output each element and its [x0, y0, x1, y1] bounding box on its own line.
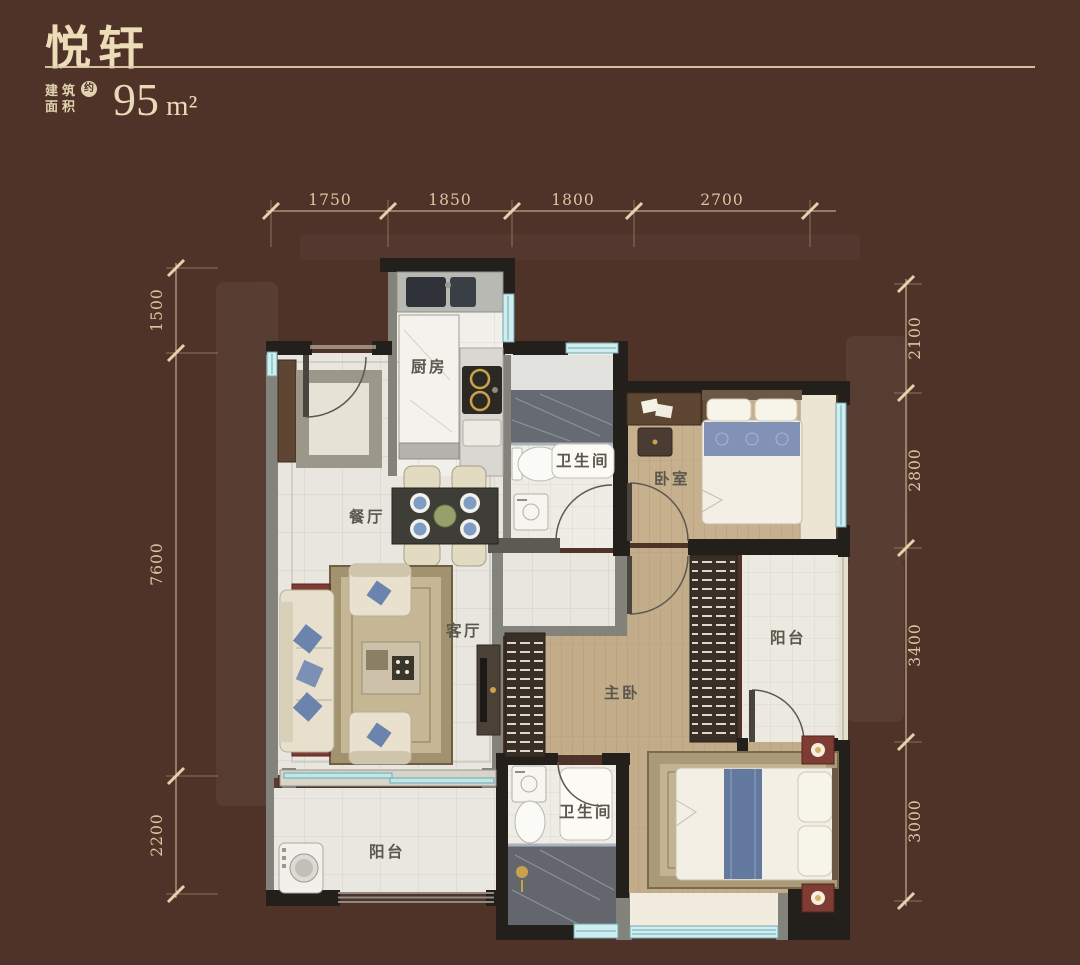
dim-left-1: 1500 [148, 288, 166, 331]
tv-icon [480, 658, 487, 722]
entry-furniture [278, 355, 382, 468]
bedroom-bay-ledge [800, 395, 836, 543]
balcony-left-furniture [279, 843, 323, 893]
kitchen-sink-icon [406, 277, 446, 307]
label-master: 主卧 [604, 683, 640, 702]
dimension-left: 1500 7600 2200 [148, 260, 218, 902]
master-bay-window [630, 893, 778, 938]
floor-plan-page: 悦轩 建筑 面积 约 95 m² [0, 0, 1080, 965]
dim-top-1: 1750 [308, 191, 351, 209]
shower-head-icon [516, 866, 528, 878]
coffee-table [362, 642, 420, 694]
label-dining: 餐厅 [348, 507, 385, 526]
centerpiece [434, 505, 456, 527]
label-balcony-left: 阳台 [369, 842, 405, 861]
label-kitchen: 厨房 [411, 357, 447, 376]
label-bath-bottom: 卫生间 [559, 802, 613, 821]
master-bed [676, 768, 838, 880]
label-bath-top: 卫生间 [556, 451, 610, 470]
armchair [349, 712, 411, 764]
entry-door-leaf [303, 355, 309, 417]
master-bed-group [648, 736, 838, 912]
balcony-left-slider [280, 770, 496, 786]
sofa [280, 590, 334, 752]
bath-top-shower [508, 390, 616, 443]
toilet-icon [515, 801, 545, 843]
shoe-cabinet [278, 360, 296, 462]
dim-right-3: 3400 [906, 623, 924, 666]
dim-left-3: 2200 [148, 813, 166, 856]
dim-left-2: 7600 [148, 542, 166, 585]
label-living: 客厅 [446, 621, 482, 640]
dim-right-2: 2800 [906, 448, 924, 491]
label-balcony-right: 阳台 [770, 628, 806, 647]
dim-top-4: 2700 [700, 191, 743, 209]
dim-right-4: 3000 [906, 799, 924, 842]
armchair [349, 564, 411, 616]
balcony-left-railing [338, 893, 494, 902]
bath-bottom-shower [508, 845, 618, 930]
dim-right-1: 2100 [906, 316, 924, 359]
dim-top-3: 1800 [551, 191, 594, 209]
tv-cabinet [477, 645, 500, 735]
dim-top-2: 1850 [428, 191, 471, 209]
floor-plan-canvas: 1750 1850 1800 2700 1500 7600 2200 [0, 0, 1080, 965]
label-bedroom: 卧室 [654, 469, 690, 488]
